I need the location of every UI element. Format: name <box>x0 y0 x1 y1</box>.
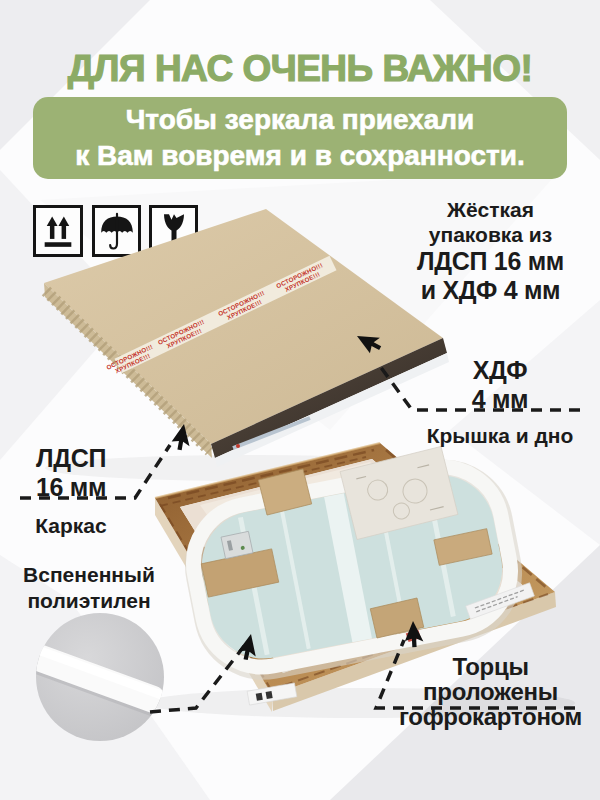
rigid-line-4: и ХДФ 4 мм <box>398 276 583 305</box>
label-edges: Торцы проложены гофрокартоном <box>388 654 593 729</box>
infographic-page: ДЛЯ НАС ОЧЕНЬ ВАЖНО! Чтобы зеркала приех… <box>0 0 600 800</box>
ldsp-caption: Каркас <box>6 513 136 538</box>
foam-line-1: Вспененный <box>4 562 174 588</box>
rigid-line-3: ЛДСП 16 мм <box>398 247 583 276</box>
label-hdf: ХДФ 4 мм Крышка и дно <box>415 356 585 448</box>
rigid-line-1: Жёсткая <box>398 197 583 222</box>
hdf-caption: Крышка и дно <box>415 423 585 448</box>
rigid-line-2: упаковка из <box>398 222 583 247</box>
top-package-photo: ОСТОРОЖНО!!! ХРУПКОЕ!!! ОСТОРОЖНО!!! ХРУ… <box>44 209 455 481</box>
hdf-line-2: 4 мм <box>415 385 585 414</box>
foam-line-2: полиэтилен <box>4 588 174 614</box>
edges-line-2: проложены <box>388 679 593 704</box>
foam-detail-circle <box>20 613 173 741</box>
ldsp-line-1: ЛДСП <box>6 444 136 473</box>
edges-line-1: Торцы <box>388 654 593 679</box>
label-foam: Вспененный полиэтилен <box>4 562 174 614</box>
label-rigid-packaging: Жёсткая упаковка из ЛДСП 16 мм и ХДФ 4 м… <box>398 197 583 305</box>
hdf-line-1: ХДФ <box>415 356 585 385</box>
edges-line-3: гофрокартоном <box>388 704 593 729</box>
label-ldsp: ЛДСП 16 мм Каркас <box>6 444 136 538</box>
ldsp-line-2: 16 мм <box>6 473 136 502</box>
